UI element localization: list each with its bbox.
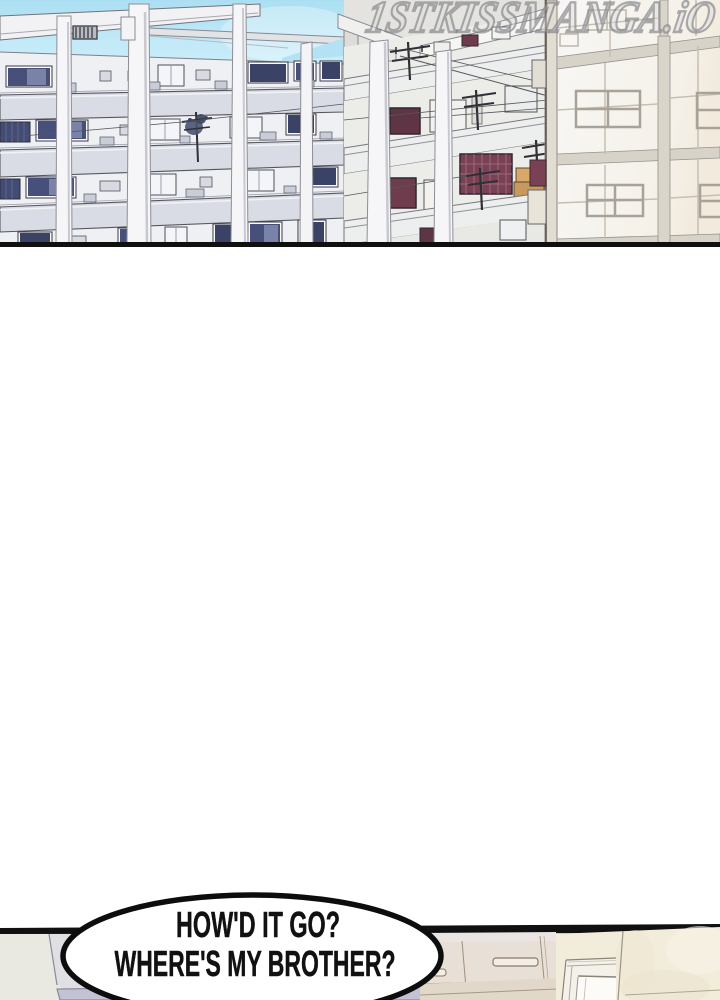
svg-text:WHERE'S MY BROTHER?: WHERE'S MY BROTHER? — [115, 943, 396, 984]
svg-text:HOW'D IT GO?: HOW'D IT GO? — [176, 904, 340, 945]
svg-text:1STKISSMANGA.iO: 1STKISSMANGA.iO — [363, 0, 720, 42]
